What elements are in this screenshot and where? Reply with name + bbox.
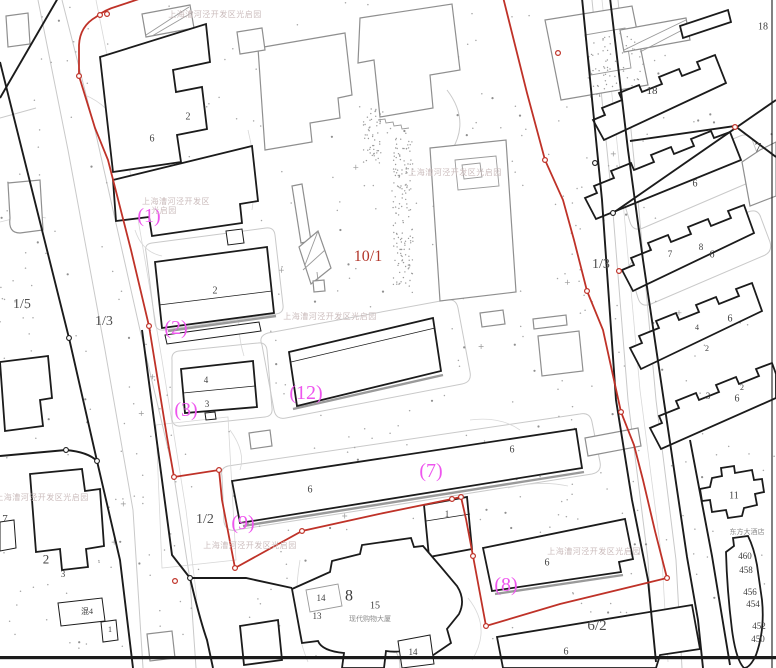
red-survey-node xyxy=(556,51,561,56)
building-number: 6 xyxy=(510,445,515,456)
building-number: 8 xyxy=(345,588,353,605)
building-number: 6 xyxy=(564,647,569,658)
red-survey-node xyxy=(105,12,110,17)
parcel-number-label: 10/1 xyxy=(354,248,382,265)
parcel-number-label: 6/2 xyxy=(587,618,606,634)
watermark-text: 上海漕河泾开发区 xyxy=(142,196,210,206)
building-number: 456 xyxy=(743,587,757,597)
building-number: 2 xyxy=(186,112,191,123)
red-survey-node xyxy=(233,566,238,571)
parcel-number-label: 1/3 xyxy=(592,257,610,272)
parcel-number-label: 1/2 xyxy=(196,512,214,527)
map-frame-bottom xyxy=(0,656,776,659)
red-survey-node xyxy=(300,529,305,534)
red-survey-node xyxy=(617,269,622,274)
boundary-point-label: (7) xyxy=(419,460,442,482)
annotation-text: 现代购物大厦 xyxy=(349,614,391,623)
red-survey-node xyxy=(147,324,152,329)
building-number: 6 xyxy=(545,558,550,569)
red-survey-node xyxy=(484,624,489,629)
building-number: 2 xyxy=(213,286,218,297)
red-survey-node xyxy=(172,475,177,480)
red-survey-node xyxy=(459,495,464,500)
black-survey-node xyxy=(593,161,598,166)
boundary-point-label: (8) xyxy=(494,574,517,596)
building-number: 18 xyxy=(758,22,768,33)
red-survey-node xyxy=(665,576,670,581)
building-number: 454 xyxy=(746,599,760,609)
building-number: 15 xyxy=(370,601,380,612)
watermark-text: 上海漕河泾开发区光启园 xyxy=(547,546,641,556)
building-number: 6 xyxy=(693,179,698,190)
building-number: 14 xyxy=(409,647,419,657)
red-survey-node xyxy=(733,125,738,130)
red-survey-node xyxy=(173,579,178,584)
building-outline xyxy=(100,24,210,172)
building-number: 1 xyxy=(108,625,112,634)
building-number: 6 xyxy=(710,250,715,261)
building-outline xyxy=(680,10,731,38)
boundary-point-label: (9) xyxy=(231,512,254,534)
parcel-number-label: 1/5 xyxy=(13,297,31,312)
annotation-text: 东方大酒店 xyxy=(730,527,765,536)
black-survey-node xyxy=(611,211,616,216)
building-number: 450 xyxy=(751,634,765,644)
building-outline xyxy=(30,469,104,570)
map-viewport[interactable]: (1)(2)(3)(12)(9)(7)(8)10/11/51/31/31/26/… xyxy=(0,0,776,668)
watermark-text: 上海漕河泾开发区光启园 xyxy=(408,167,502,177)
building-number: 2 xyxy=(43,552,50,567)
building-number: 混4 xyxy=(81,607,93,616)
building-number: 6 xyxy=(735,394,740,405)
building-outline xyxy=(424,497,472,557)
building-number: 460 xyxy=(738,551,752,561)
building-number: 1 xyxy=(445,509,450,519)
building-number: 6 xyxy=(150,134,155,145)
building-number: 18 xyxy=(647,85,659,97)
building-number: 2 xyxy=(705,344,709,353)
building-number: 2 xyxy=(740,383,744,392)
boundary-point-label: (2) xyxy=(164,317,187,339)
red-survey-node xyxy=(77,74,82,79)
building-number: 6 xyxy=(728,314,733,325)
building-number: 3 xyxy=(205,399,210,409)
building-number: 6 xyxy=(308,485,313,496)
building-number: 7 xyxy=(2,513,8,525)
building-number: 4 xyxy=(204,375,209,385)
building-number: 3 xyxy=(706,391,711,401)
red-survey-node xyxy=(619,410,624,415)
red-survey-node xyxy=(543,158,548,163)
boundary-point-label: (12) xyxy=(289,382,322,404)
building-number: 7 xyxy=(755,140,762,155)
parcel-number-label: 1/3 xyxy=(95,314,113,329)
red-survey-node xyxy=(585,289,590,294)
building-number: 458 xyxy=(739,565,753,575)
building-number: 452 xyxy=(752,621,766,631)
watermark-text: 上海漕河泾开发区光启园 xyxy=(283,311,377,321)
red-survey-node xyxy=(98,13,103,18)
black-survey-node xyxy=(64,448,69,453)
black-survey-node xyxy=(95,459,100,464)
building-outline xyxy=(0,356,52,431)
building-number: 8 xyxy=(699,242,704,252)
watermark-text: 上海漕河泾开发区光启园 xyxy=(203,540,297,550)
building-number: 7 xyxy=(668,249,673,259)
boundary-point-label: (3) xyxy=(174,399,197,421)
black-survey-node xyxy=(188,576,193,581)
building-number: 4 xyxy=(695,323,699,332)
red-survey-node xyxy=(471,554,476,559)
watermark-text: 光启园 xyxy=(151,205,177,215)
black-survey-node xyxy=(67,336,72,341)
cadastral-map-canvas[interactable]: (1)(2)(3)(12)(9)(7)(8)10/11/51/31/31/26/… xyxy=(0,0,776,668)
watermark-text: 上海漕河泾开发区光启园 xyxy=(168,9,262,19)
building-number: 14 xyxy=(317,593,327,603)
red-survey-node xyxy=(217,468,222,473)
watermark-text: 上海漕河泾开发区光启园 xyxy=(0,492,89,502)
building-number: 3 xyxy=(61,569,66,579)
building-outline xyxy=(585,131,741,219)
building-number: 13 xyxy=(313,611,323,621)
building-number: 11 xyxy=(729,491,739,502)
red-survey-node xyxy=(450,497,455,502)
